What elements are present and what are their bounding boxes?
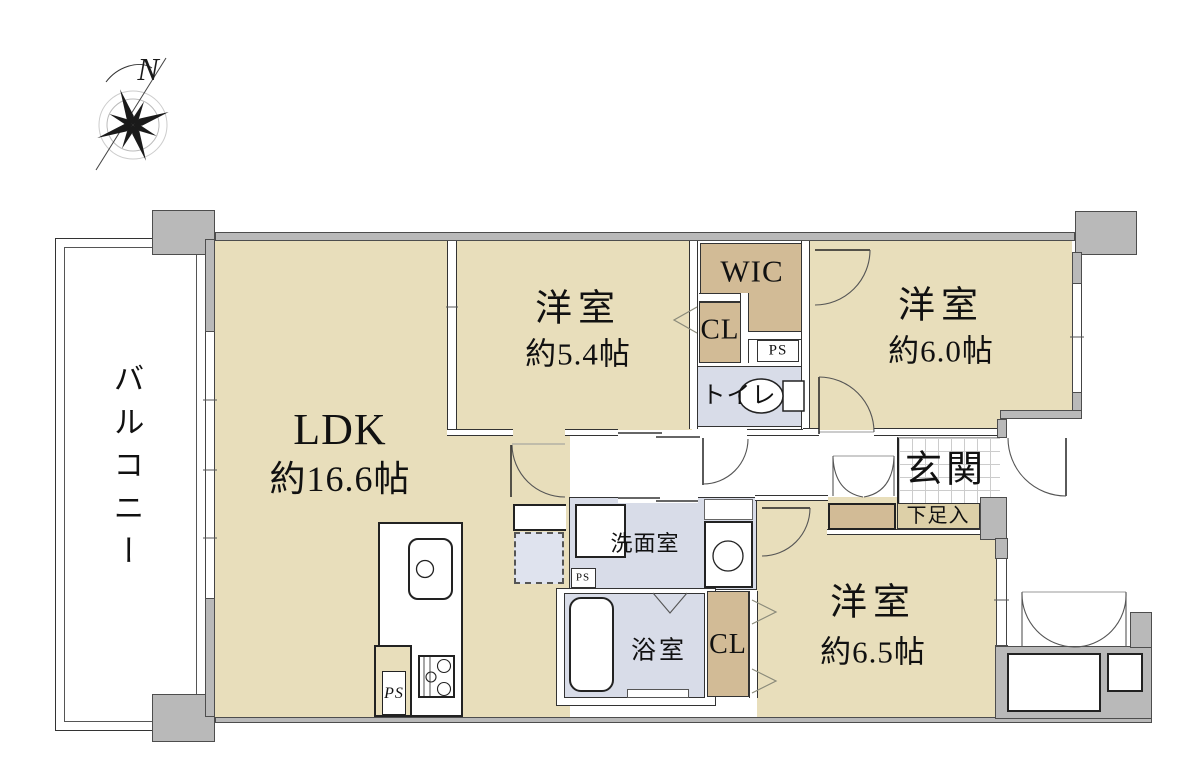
ldk-name-label: LDK	[293, 408, 386, 452]
entrance-label: 玄関	[905, 452, 987, 489]
meter-box-a	[1007, 653, 1101, 712]
wall-bedroom1-wic	[689, 241, 698, 429]
wall-bedroom2-southeast	[1000, 410, 1082, 419]
washroom-slider-gap	[618, 494, 698, 503]
kitchen-stove	[418, 655, 455, 698]
wall-entrance-east	[997, 419, 1007, 438]
wall-hall-bedroom2-b	[874, 428, 1004, 436]
wall-east-a	[1072, 252, 1082, 284]
toilet-label: トイレ	[702, 384, 777, 408]
wall-wic-cl	[699, 293, 743, 302]
pillar-entrance	[980, 497, 1007, 540]
balcony-label: バルコニー	[111, 363, 142, 578]
wall-cl-wic	[740, 293, 749, 363]
closet-bedroom1-label: CL	[700, 316, 739, 345]
wall-ldk-bedroom1	[447, 241, 457, 429]
ldk-size-label: 約16.6帖	[269, 461, 410, 497]
wic-label: WIC	[720, 256, 783, 287]
bathroom-label: 浴室	[631, 639, 687, 664]
refrigerator-space	[514, 532, 564, 584]
wall-bedroom3-north	[755, 495, 828, 501]
wall-bedroom1-south-a	[447, 429, 513, 436]
wall-wic-ps	[748, 331, 802, 340]
bedroom3-size-label: 約6.5帖	[820, 637, 926, 668]
bedroom2-floor-south	[810, 404, 1003, 430]
wall-bedroom3-east-a	[995, 538, 1008, 559]
entrance-closet-box	[828, 503, 896, 530]
pipe-space-kitchen-label: PS	[384, 686, 404, 702]
compass-rose: N	[96, 51, 169, 170]
window-ldk-west	[205, 332, 215, 598]
bedroom2-size-label: 約6.0帖	[888, 336, 994, 367]
window-bedroom3-east	[996, 559, 1007, 645]
meter-box-arm	[1130, 612, 1152, 648]
window-bedroom2-east	[1072, 284, 1082, 392]
washer-space-upper	[704, 499, 753, 520]
floor-plan: バルコニー	[0, 0, 1200, 773]
wall-toilet-south	[747, 429, 804, 436]
bathtub	[569, 597, 614, 692]
wall-hall-bedroom2-a	[803, 428, 819, 436]
bedroom1-name-label: 洋室	[535, 291, 621, 328]
wall-west-a	[205, 239, 215, 332]
wall-north	[215, 232, 1075, 241]
pipe-space-wic-label: PS	[769, 344, 788, 359]
washroom-label: 洗面室	[610, 533, 679, 555]
bedroom2-name-label: 洋室	[898, 288, 984, 325]
compass-n-label: N	[136, 51, 160, 87]
pillar-top-right	[1075, 211, 1137, 255]
bathroom-counter	[627, 689, 689, 698]
wall-west-b	[205, 598, 215, 717]
bedroom1-floor	[457, 241, 692, 430]
shoe-storage-label: 下足入	[907, 506, 970, 526]
meter-box-b	[1107, 653, 1143, 692]
kitchen-sink	[408, 538, 453, 600]
wall-closet-bedroom3	[749, 591, 758, 698]
ldk-cabinet	[513, 504, 566, 531]
wall-bedroom1-south-b	[565, 429, 618, 436]
closet-bedroom3-label: CL	[709, 631, 747, 659]
pipe-space-washroom-label: PS	[576, 573, 590, 584]
bedroom3-name-label: 洋室	[830, 585, 916, 622]
washing-machine-space	[704, 521, 753, 588]
wall-wic-bedroom2	[801, 241, 810, 429]
bedroom1-size-label: 約5.4帖	[525, 339, 631, 370]
